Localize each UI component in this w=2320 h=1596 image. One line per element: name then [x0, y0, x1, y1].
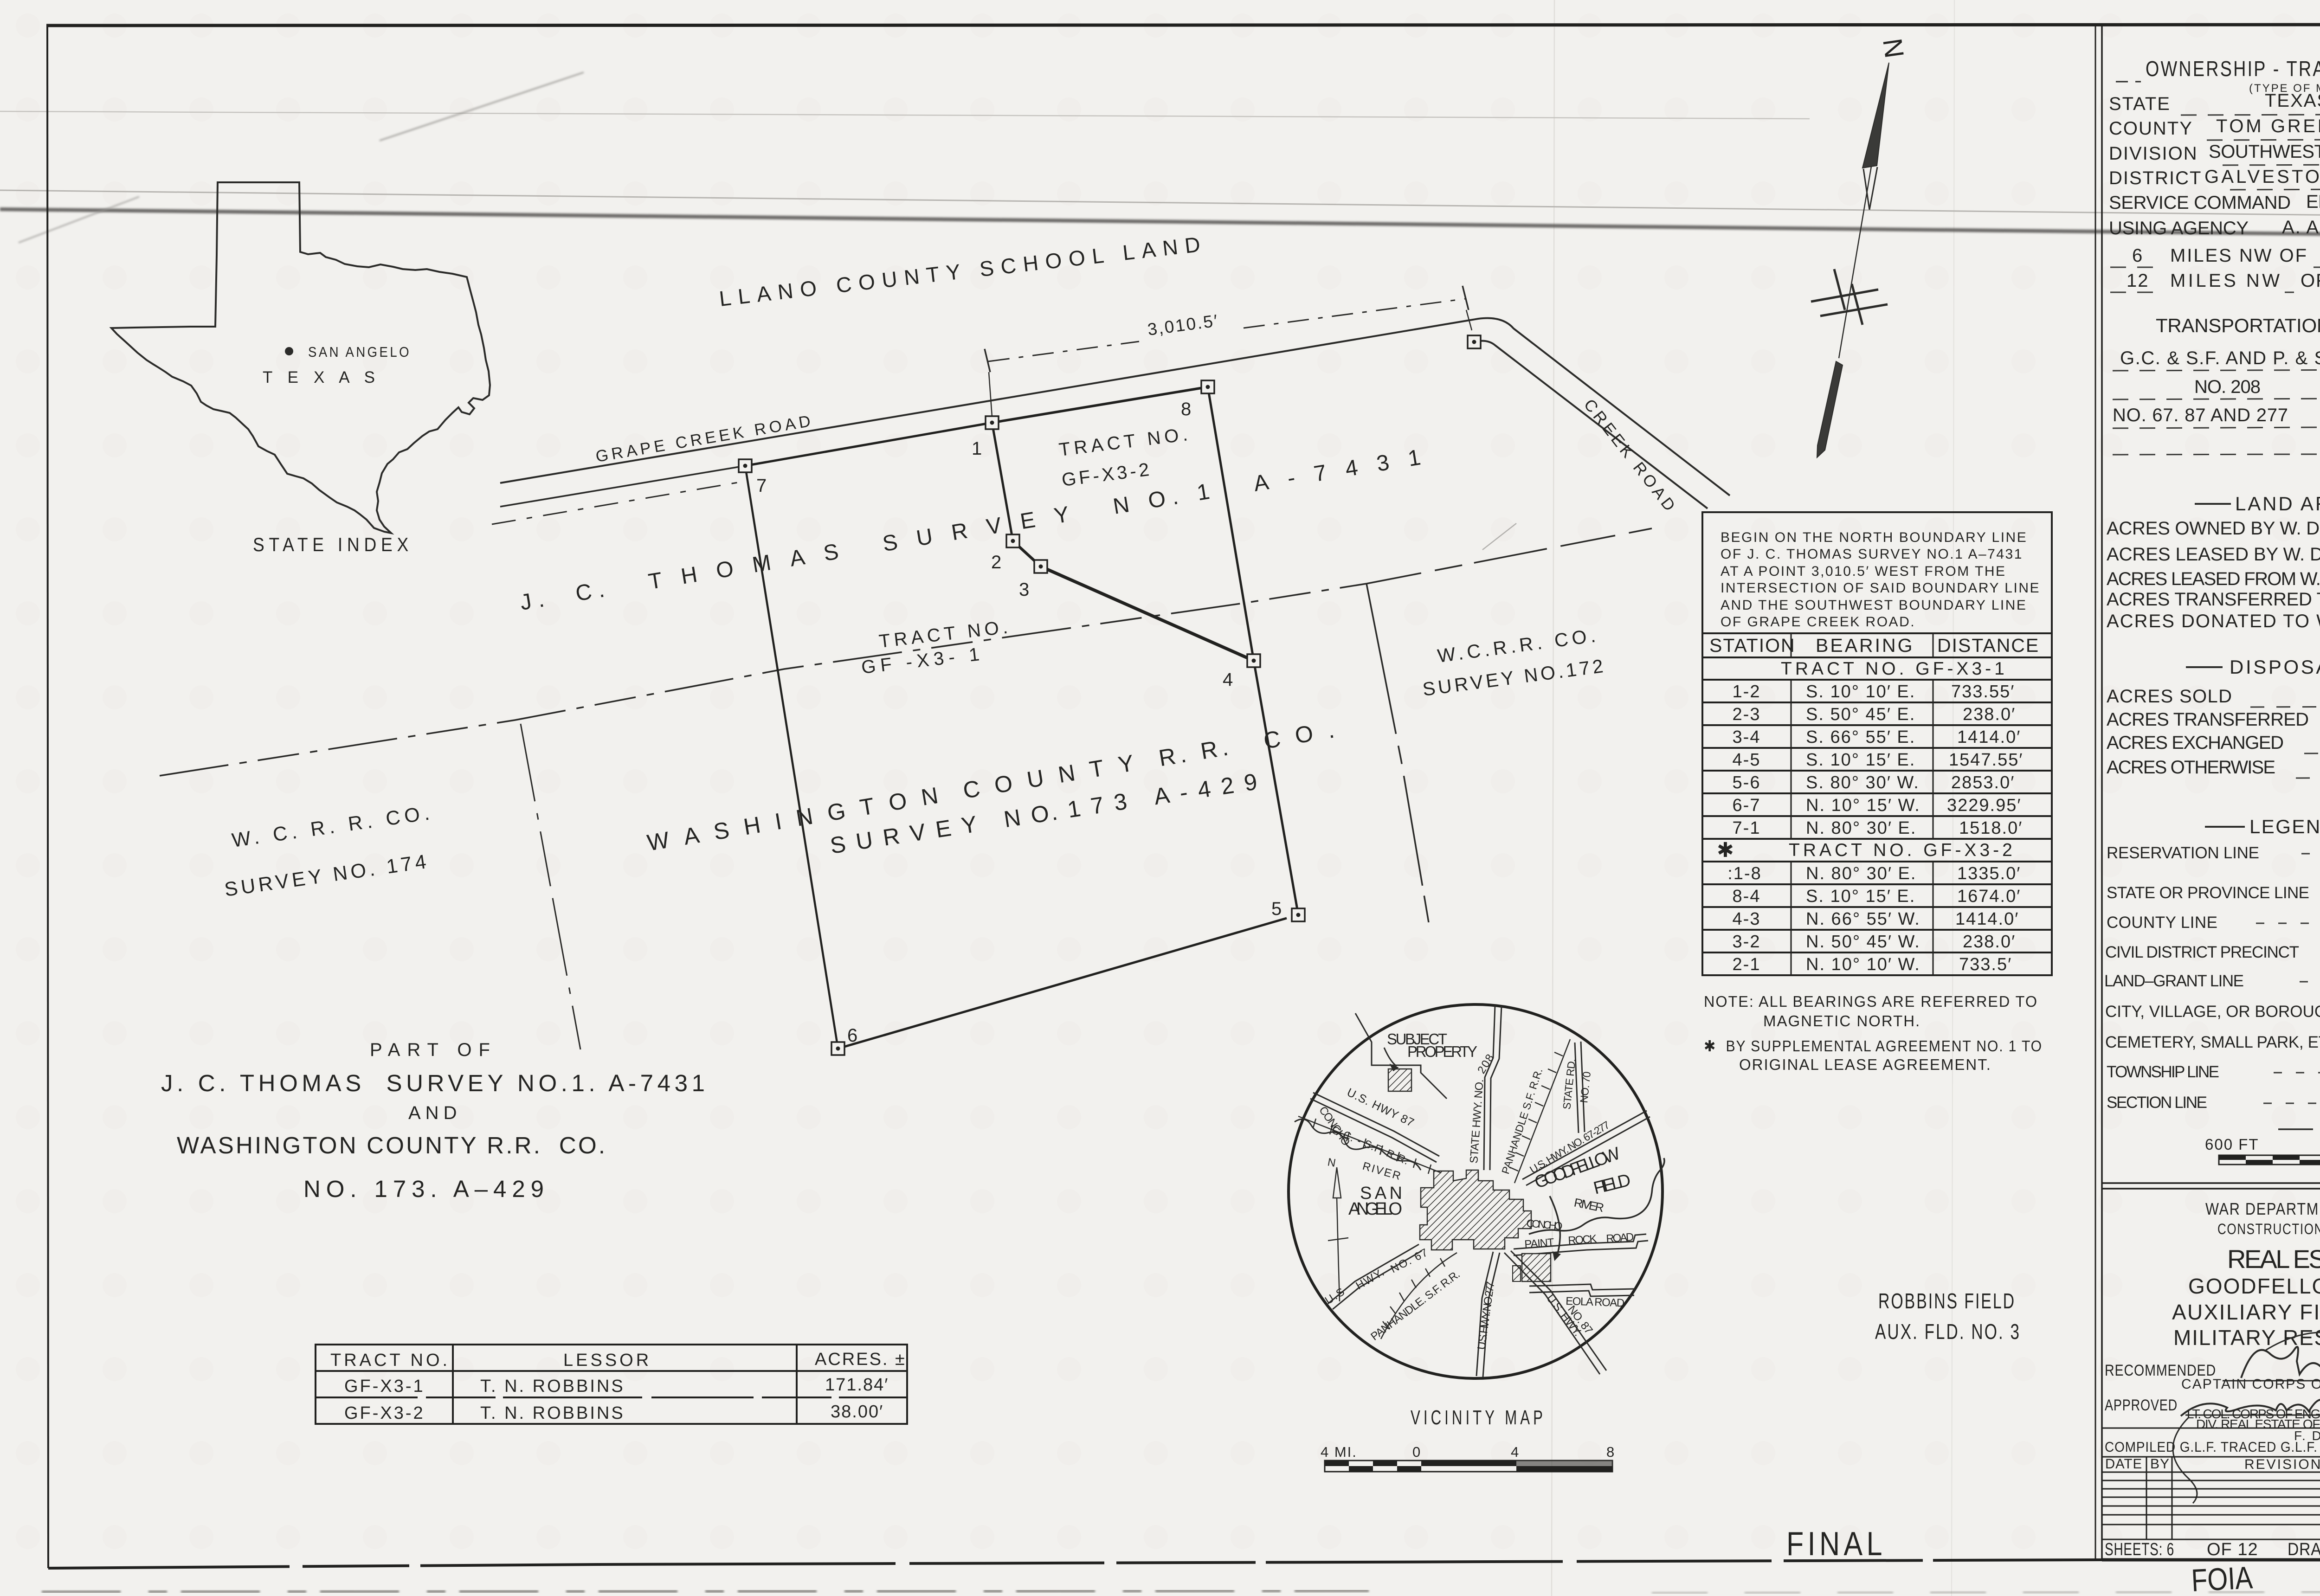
svg-text:AND THE SOUTHWEST BOUNDARY: AND THE SOUTHWEST BOUNDARY LINE — [1721, 598, 2027, 613]
svg-text:WAR DEPARTMENT, O.C.E.: WAR DEPARTMENT, O.C.E. — [2205, 1199, 2320, 1218]
svg-text:ACRES OTHERWISE: ACRES OTHERWISE — [2107, 757, 2276, 778]
svg-text:DIVISION: DIVISION — [2109, 143, 2198, 164]
svg-text:OF: OF — [2301, 270, 2320, 291]
svg-text:T. N. ROBBINS: T. N. ROBBINS — [480, 1377, 625, 1396]
svg-text:ANGELO: ANGELO — [1348, 1199, 1405, 1219]
svg-text:DRAWING NO.: DRAWING NO. — [2288, 1540, 2320, 1559]
svg-text:GALVESTON: GALVESTON — [2204, 167, 2320, 187]
svg-text:A. A. F.: A. A. F. — [2282, 217, 2320, 238]
svg-text:38.00′: 38.00′ — [831, 1402, 883, 1422]
svg-text:S. 80° 30′ W.: S. 80° 30′ W. — [1806, 773, 1920, 792]
svg-text:DISPOSALS: DISPOSALS — [2230, 656, 2320, 678]
svg-text:ACRES EXCHANGED: ACRES EXCHANGED — [2107, 733, 2285, 753]
svg-text:GF-X3-2: GF-X3-2 — [344, 1403, 425, 1423]
svg-text:CITY, VILLAGE, OR BOROUGH-: CITY, VILLAGE, OR BOROUGH- — [2105, 1003, 2320, 1021]
svg-text:5-6: 5-6 — [1733, 773, 1761, 792]
svg-text:ACRES SOLD: ACRES SOLD — [2107, 686, 2233, 707]
svg-text:2853.0′: 2853.0′ — [1951, 773, 2015, 792]
svg-text:DATE: DATE — [2105, 1456, 2142, 1472]
svg-text:2-3: 2-3 — [1733, 705, 1761, 724]
svg-text:OWNERSHIP - TRACT MAP: OWNERSHIP - TRACT MAP — [2146, 57, 2320, 81]
svg-text:MILITARY RESERVATION: MILITARY RESERVATION — [2173, 1326, 2320, 1350]
svg-text:600 FT: 600 FT — [2205, 1136, 2259, 1153]
svg-text:SOUTHWESTERN: SOUTHWESTERN — [2209, 142, 2320, 162]
svg-text:NO. 208: NO. 208 — [2194, 377, 2262, 397]
svg-text:4-5: 4-5 — [1733, 750, 1761, 770]
svg-text:LEGEND: LEGEND — [2249, 816, 2320, 837]
svg-text:N. 66° 55′ W.: N. 66° 55′ W. — [1806, 909, 1920, 929]
svg-text:ACRES DONATED TO W. D.: ACRES DONATED TO W. D. — [2107, 611, 2320, 631]
svg-text:TRACT NO. GF-X3-1: TRACT NO. GF-X3-1 — [1781, 659, 2008, 679]
svg-text:4 MI.: 4 MI. — [1321, 1444, 1357, 1460]
svg-text:7: 7 — [756, 476, 767, 496]
svg-text:1518.0′: 1518.0′ — [1959, 818, 2023, 838]
svg-text:ACRES. ±: ACRES. ± — [815, 1350, 906, 1369]
svg-text:6: 6 — [2132, 245, 2143, 266]
svg-text:ACRES TRANSFERRED TO W.: ACRES TRANSFERRED TO W. D. — [2107, 589, 2320, 610]
svg-text:USING AGENCY: USING AGENCY — [2109, 218, 2249, 238]
svg-text:BEARING: BEARING — [1816, 635, 1914, 656]
svg-text:N. 80° 30′ E.: N. 80° 30′ E. — [1806, 818, 1916, 838]
svg-text:APPROVED: APPROVED — [2105, 1396, 2178, 1414]
svg-text:S. 50° 45′ E.: S. 50° 45′ E. — [1806, 705, 1915, 724]
svg-text:3229.95′: 3229.95′ — [1947, 796, 2022, 815]
svg-text:CEMETERY, SMALL PARK, ETC: CEMETERY, SMALL PARK, ETC — [2105, 1033, 2320, 1051]
svg-text:N: N — [1877, 37, 1909, 60]
svg-text:GOODFELLOW FIELD: GOODFELLOW FIELD — [2188, 1274, 2320, 1298]
svg-text:S. 10° 10′ E.: S. 10° 10′ E. — [1806, 682, 1915, 701]
svg-text:7-1: 7-1 — [1733, 818, 1761, 838]
svg-text:4-3: 4-3 — [1733, 909, 1761, 929]
svg-text:COUNTY LINE: COUNTY LINE — [2107, 914, 2218, 932]
svg-text:S. 10° 15′ E.: S. 10° 15′ E. — [1806, 887, 1915, 906]
svg-text:SAN ANGELO: SAN ANGELO — [308, 344, 411, 360]
svg-text:ACRES TRANSFERRED: ACRES TRANSFERRED — [2107, 709, 2310, 730]
svg-text:PAINT: PAINT — [1524, 1236, 1556, 1251]
svg-text:1414.0′: 1414.0′ — [1955, 909, 2019, 929]
svg-text:CIVIL DISTRICT PRECINCT: CIVIL DISTRICT PRECINCT — [2105, 943, 2300, 961]
svg-text:LAND–GRANT LINE: LAND–GRANT LINE — [2104, 972, 2244, 990]
svg-text:TRACT NO. GF-X3-2: TRACT NO. GF-X3-2 — [1789, 840, 2016, 860]
svg-text:DISTANCE: DISTANCE — [1937, 635, 2039, 656]
svg-text:1414.0′: 1414.0′ — [1957, 727, 2021, 747]
svg-text:PROPERTY: PROPERTY — [1407, 1043, 1479, 1060]
svg-text:T. N. ROBBINS: T. N. ROBBINS — [480, 1403, 625, 1423]
svg-text:J. C. THOMAS SURVEY NO.1. A-7: J. C. THOMAS SURVEY NO.1. A-7431 — [161, 1070, 705, 1096]
svg-text:COUNTY: COUNTY — [2109, 118, 2193, 139]
svg-text:ROCK: ROCK — [1568, 1233, 1598, 1247]
svg-text:TRANSPORTATION FACILITIES: TRANSPORTATION FACILITIES — [2156, 315, 2320, 336]
svg-text:238.0′: 238.0′ — [1963, 705, 2016, 724]
svg-text:6-7: 6-7 — [1733, 796, 1761, 815]
svg-text:TOWNSHIP LINE: TOWNSHIP LINE — [2107, 1063, 2220, 1081]
svg-text:733.55′: 733.55′ — [1951, 682, 2015, 701]
svg-text:ROAD: ROAD — [1606, 1231, 1636, 1245]
svg-text:N. 10° 10′ W.: N. 10° 10′ W. — [1806, 955, 1920, 974]
svg-text:733.5′: 733.5′ — [1959, 955, 2012, 974]
svg-text:4: 4 — [1511, 1444, 1519, 1460]
svg-text:AUX. FLD. NO. 3: AUX. FLD. NO. 3 — [1875, 1319, 2021, 1344]
svg-text:5: 5 — [1271, 899, 1282, 919]
svg-text:RESERVATION LINE: RESERVATION LINE — [2107, 844, 2260, 862]
svg-text:SERVICE COMMAND: SERVICE COMMAND — [2109, 193, 2292, 213]
svg-text:N. 50° 45′ W.: N. 50° 45′ W. — [1806, 932, 1920, 952]
svg-text:TRACT NO.: TRACT NO. — [330, 1351, 450, 1370]
svg-text:BEGIN ON THE NORTH BOUNDAR: BEGIN ON THE NORTH BOUNDARY LINE — [1721, 530, 2027, 545]
svg-text:ACRES OWNED BY W. D.: ACRES OWNED BY W. D. — [2107, 518, 2320, 539]
svg-text:4: 4 — [1223, 669, 1233, 690]
svg-text:S. 10° 15′ E.: S. 10° 15′ E. — [1806, 750, 1915, 770]
svg-text:✱ BY SUPPLEMENTAL AGREEMENT: ✱ BY SUPPLEMENTAL AGREEMENT NO. 1 TO — [1704, 1037, 2043, 1055]
svg-text:G.C. & S.F. AND P. & S.F.: G.C. & S.F. AND P. & S.F. — [2120, 348, 2320, 368]
svg-text:STATE: STATE — [2109, 94, 2171, 114]
svg-text:SHEETS: 6: SHEETS: 6 — [2105, 1540, 2174, 1559]
svg-text:1674.0′: 1674.0′ — [1957, 887, 2021, 906]
svg-text:8-4: 8-4 — [1733, 887, 1761, 906]
svg-text:TEXAS: TEXAS — [2265, 90, 2320, 111]
svg-text:PART OF: PART OF — [370, 1040, 497, 1060]
svg-text:LAND AREA: LAND AREA — [2235, 493, 2320, 515]
svg-text:3-4: 3-4 — [1733, 727, 1761, 747]
svg-text:ACRES LEASED BY W. D.: ACRES LEASED BY W. D. — [2107, 544, 2320, 565]
svg-text:S. 66° 55′ E.: S. 66° 55′ E. — [1806, 727, 1915, 747]
svg-text:OF GRAPE CREEK ROAD.: OF GRAPE CREEK ROAD. — [1721, 614, 1915, 630]
svg-text:OF 12: OF 12 — [2207, 1540, 2258, 1559]
svg-text:AUXILIARY FIELD NO. 3: AUXILIARY FIELD NO. 3 — [2172, 1300, 2320, 1324]
svg-text:171.84′: 171.84′ — [825, 1375, 889, 1395]
svg-text:1335.0′: 1335.0′ — [1957, 864, 2021, 883]
svg-text:FOIA: FOIA — [2191, 1560, 2254, 1596]
svg-text:NOTE: ALL BEARINGS ARE REF: NOTE: ALL BEARINGS ARE REFERRED TO — [1704, 993, 2038, 1010]
svg-text:VICINITY MAP: VICINITY MAP — [1411, 1406, 1546, 1429]
svg-text:ROBBINS FIELD: ROBBINS FIELD — [1878, 1289, 2016, 1313]
svg-text:STATION: STATION — [1709, 635, 1796, 656]
svg-text:LESSOR: LESSOR — [563, 1351, 651, 1370]
svg-text:MILES NW OF: MILES NW OF — [2170, 245, 2307, 266]
svg-text:REAL ESTATE: REAL ESTATE — [2227, 1244, 2320, 1274]
svg-text:CAPTAIN CORPS OF ENGINEERS: CAPTAIN CORPS OF ENGINEERS — [2181, 1377, 2320, 1392]
svg-text:12: 12 — [2127, 270, 2149, 291]
svg-text:AT A POINT 3,010.5′ WEST: AT A POINT 3,010.5′ WEST FROM THE — [1721, 564, 2006, 579]
svg-text:0: 0 — [1412, 1444, 1420, 1460]
svg-text:1547.55′: 1547.55′ — [1949, 750, 2024, 770]
svg-text::1-8: :1-8 — [1727, 864, 1761, 883]
svg-text:238.0′: 238.0′ — [1963, 932, 2016, 952]
svg-text:1-2: 1-2 — [1733, 682, 1761, 701]
svg-text:FINAL: FINAL — [1786, 1525, 1886, 1563]
svg-text:ACRES LEASED FROM W. D.: ACRES LEASED FROM W. D. — [2107, 569, 2320, 589]
svg-text:CONSTRUCTION DIVISION: CONSTRUCTION DIVISION — [2217, 1221, 2320, 1237]
svg-text:ORIGINAL LEASE AGREEMENT.: ORIGINAL LEASE AGREEMENT. — [1739, 1056, 1991, 1073]
svg-text:NO. 67. 87 AND 277: NO. 67. 87 AND 277 — [2113, 405, 2289, 425]
svg-text:GF-X3-1: GF-X3-1 — [344, 1377, 425, 1396]
svg-text:DISTRICT: DISTRICT — [2109, 168, 2202, 188]
svg-text:✱: ✱ — [1717, 839, 1734, 862]
svg-text:AND: AND — [408, 1103, 461, 1123]
svg-text:SECTION LINE: SECTION LINE — [2107, 1094, 2208, 1112]
svg-text:1: 1 — [972, 438, 982, 459]
svg-text:EIGHTH: EIGHTH — [2306, 192, 2320, 212]
svg-text:8: 8 — [1181, 399, 1191, 419]
svg-text:INTERSECTION OF SAID BOUNDA: INTERSECTION OF SAID BOUNDARY LINE — [1721, 580, 2040, 596]
svg-text:OF J. C. THOMAS SURVEY NO.1: OF J. C. THOMAS SURVEY NO.1 A–7431 — [1721, 547, 2023, 562]
svg-text:N. 80° 30′ E.: N. 80° 30′ E. — [1806, 864, 1916, 883]
svg-text:8: 8 — [1606, 1444, 1614, 1460]
svg-text:COMPILED G.L.F. TRACED G.L.: COMPILED G.L.F. TRACED G.L.F. CHECKED. — [2105, 1439, 2320, 1455]
svg-text:2: 2 — [991, 552, 1001, 573]
svg-text:MAGNETIC NORTH.: MAGNETIC NORTH. — [1763, 1012, 1920, 1030]
svg-text:2-1: 2-1 — [1733, 955, 1761, 974]
svg-text:STATE OR PROVINCE LINE: STATE OR PROVINCE LINE — [2107, 884, 2310, 902]
svg-text:REVISIONS: REVISIONS — [2244, 1457, 2320, 1472]
svg-text:STATE INDEX: STATE INDEX — [253, 534, 413, 555]
svg-text:N. 10° 15′ W.: N. 10° 15′ W. — [1806, 796, 1920, 815]
svg-text:T E X A S: T E X A S — [263, 368, 387, 386]
svg-text:3-2: 3-2 — [1733, 932, 1761, 952]
svg-text:BY: BY — [2150, 1456, 2170, 1472]
svg-text:6: 6 — [847, 1025, 857, 1046]
svg-text:3: 3 — [1019, 579, 1029, 600]
svg-text:TOM GREEN: TOM GREEN — [2216, 116, 2320, 136]
